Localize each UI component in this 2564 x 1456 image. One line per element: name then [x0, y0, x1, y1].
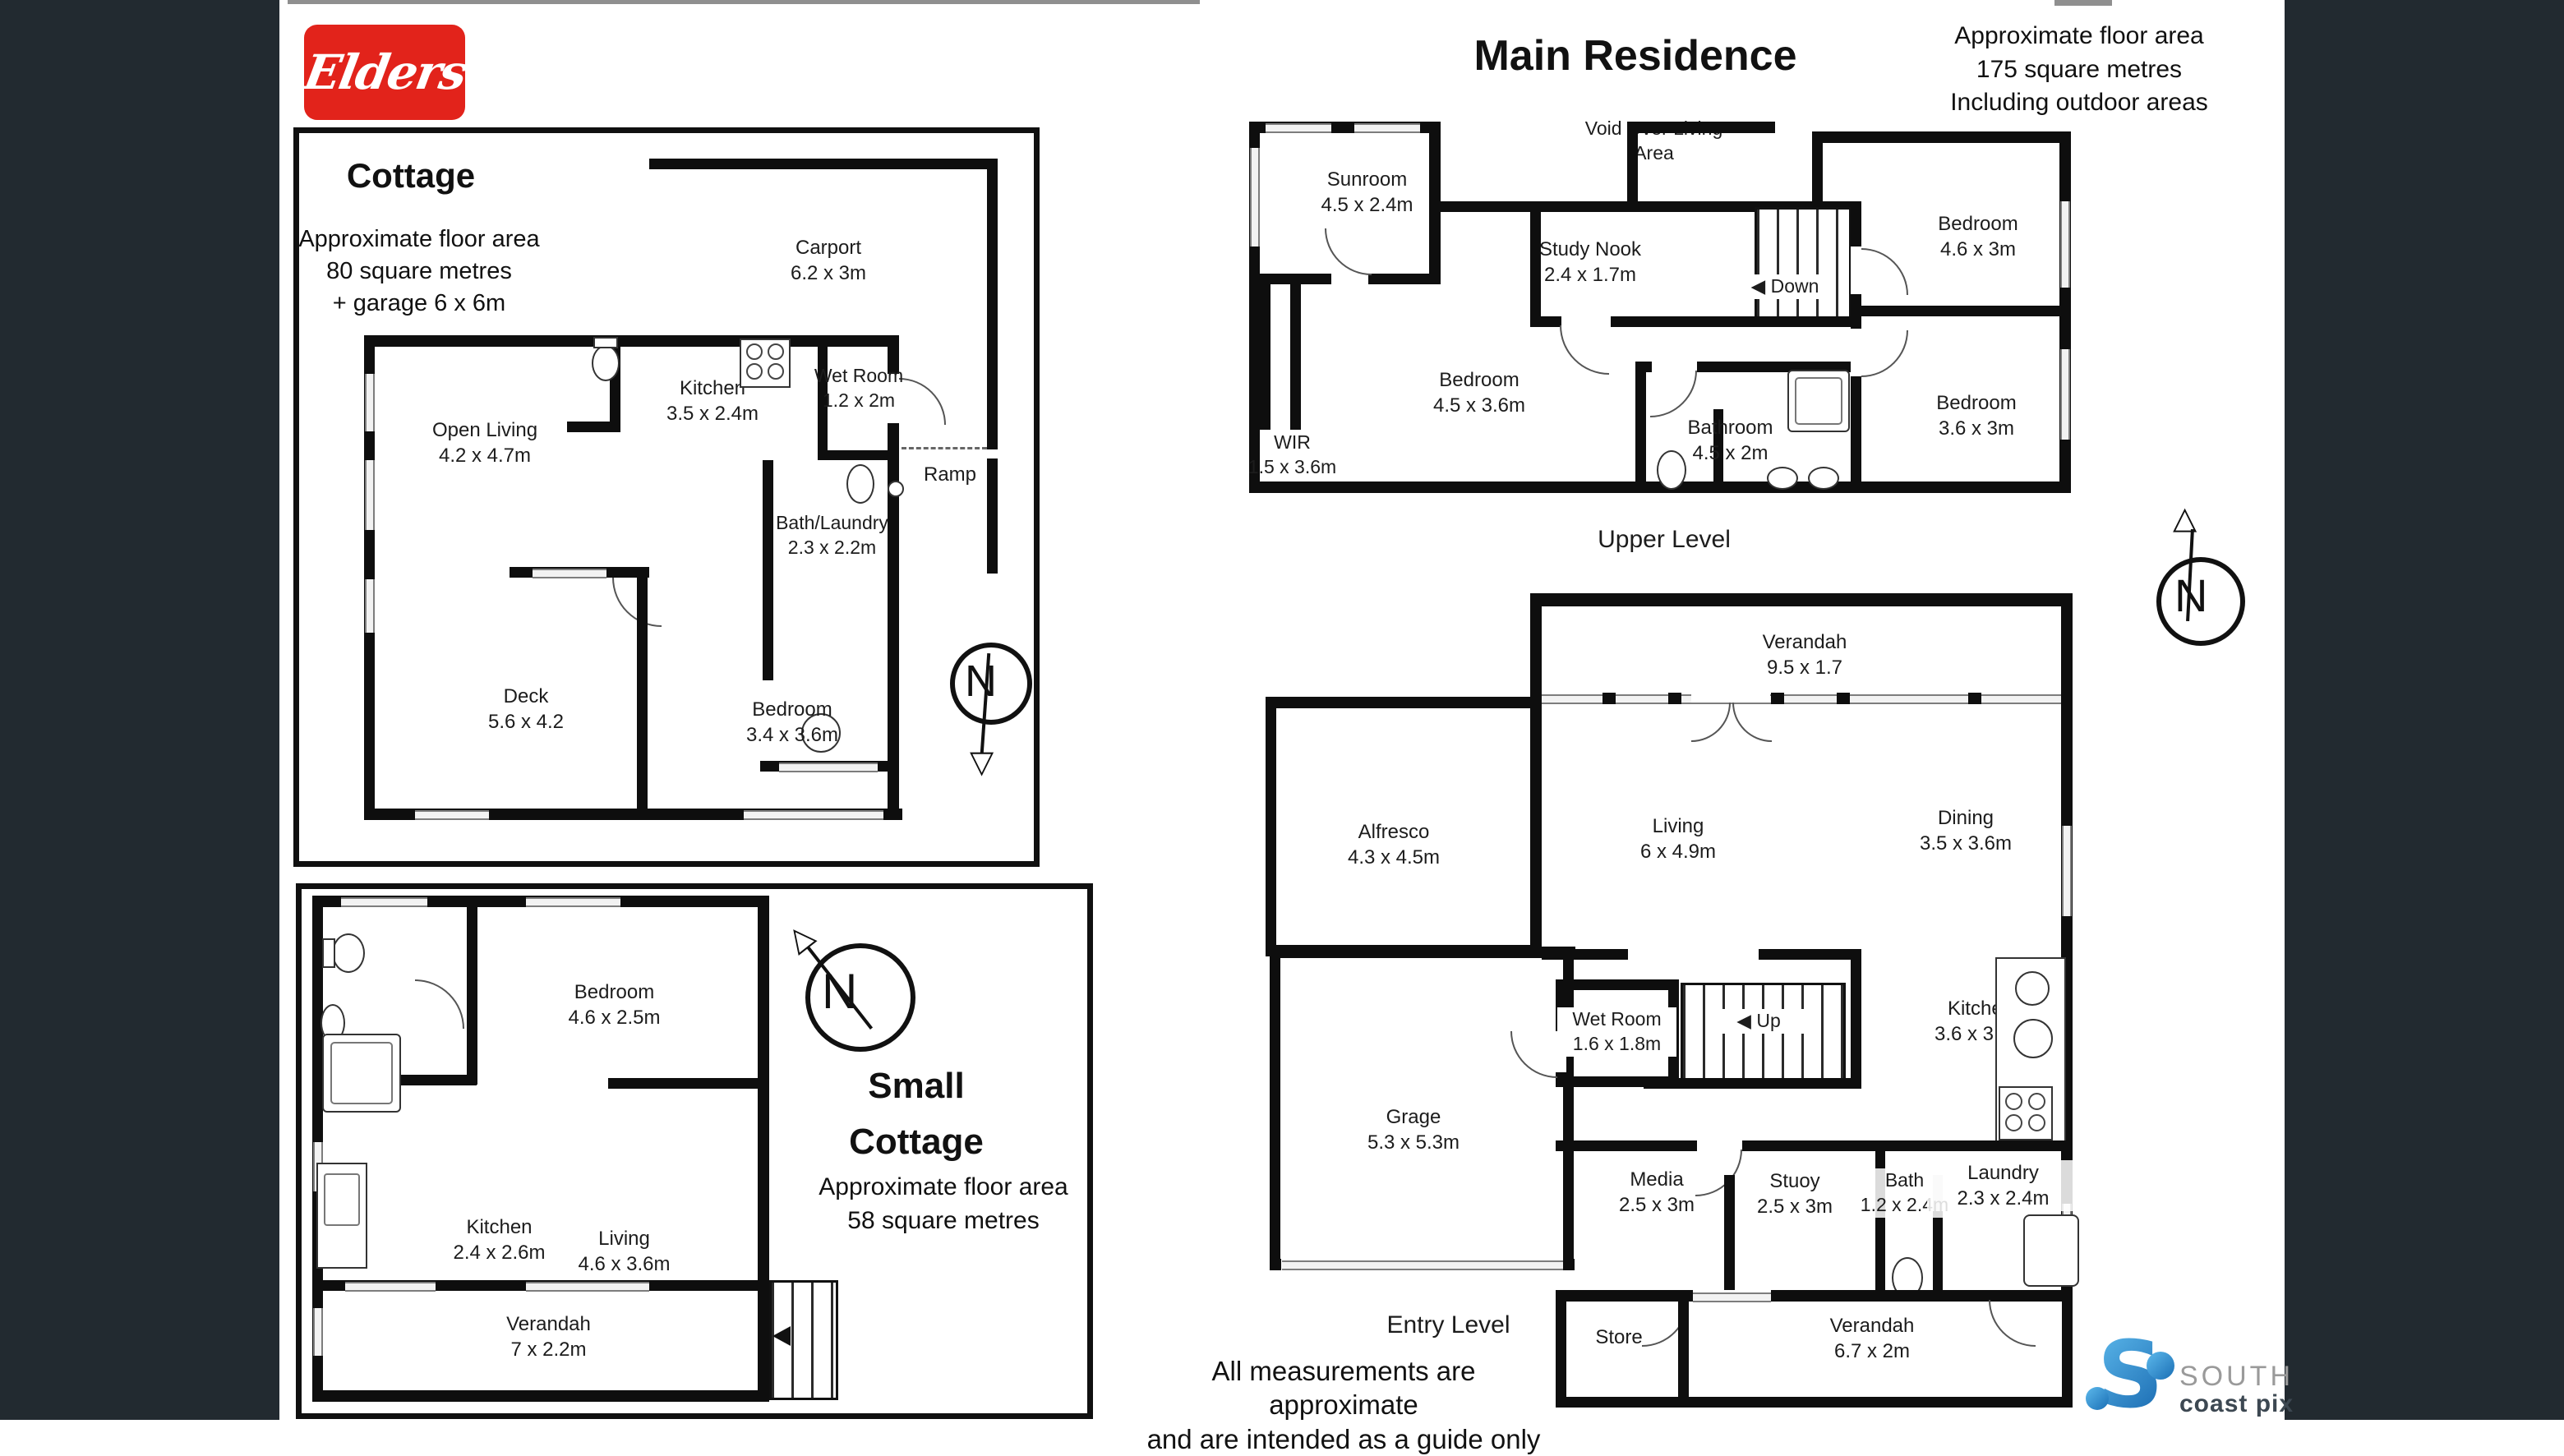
wall [987, 159, 998, 449]
compass-arrowhead: △ [2173, 500, 2197, 537]
wall [1627, 122, 1638, 212]
compass-north-letter: N [965, 656, 997, 707]
wall [1530, 593, 1542, 697]
door-arc [1650, 371, 1697, 417]
room-label-bedroom-cottage: Bedroom3.4 x 3.6m [722, 697, 863, 748]
window [779, 763, 878, 772]
sink-icon [2015, 971, 2050, 1006]
stove-burner-icon [2005, 1093, 2022, 1110]
wall [1759, 949, 1861, 960]
door-arc [1325, 228, 1372, 275]
room-label-bedroom-upper-left: Bedroom4.5 x 3.6m [1401, 367, 1557, 418]
wall [567, 422, 620, 432]
elders-logo: Elders [304, 25, 465, 120]
window [2060, 201, 2070, 288]
sink-icon [1808, 467, 1839, 490]
room-label-bedroom-upper-bottomright: Bedroom3.6 x 3m [1898, 390, 2054, 441]
sink-icon [1767, 467, 1798, 490]
room-label-wir: WIR1.5 x 3.6m [1237, 431, 1348, 480]
room-label-studynook: Study Nook2.4 x 1.7m [1516, 237, 1664, 288]
window [2062, 826, 2072, 916]
room-label-media: Media2.5 x 3m [1583, 1167, 1731, 1218]
window [744, 810, 883, 820]
room-label-bathlaundry: Bath/Laundry2.3 x 2.2m [764, 511, 900, 560]
wall [1530, 697, 1542, 956]
wall [1260, 274, 1270, 430]
door-opening [1851, 329, 1861, 376]
toilet-tank-icon [593, 337, 618, 348]
window-post [1668, 693, 1681, 704]
disclaimer-text: All measurements are approximate and are… [1138, 1354, 1549, 1456]
window [526, 897, 620, 907]
room-label-verandah-smallcottage: Verandah7 x 2.2m [477, 1311, 620, 1362]
wall [2061, 593, 2073, 697]
southcoastpix-word-south: SOUTH [2179, 1361, 2294, 1393]
window [1693, 1292, 1771, 1302]
floorplan-page: { "page": {"side_panel_color": "#222a30"… [0, 0, 2564, 1420]
window [345, 1282, 436, 1292]
main-area-line1: Approximate floor area [1915, 20, 2243, 53]
room-label-alfresco: Alfresco4.3 x 4.5m [1320, 819, 1468, 870]
wall [1851, 306, 2060, 316]
upper-level-label: Upper Level [1582, 526, 1746, 554]
window-post [1968, 693, 1981, 704]
wall [2062, 1290, 2073, 1408]
toilet-tank-icon [322, 938, 335, 968]
room-label-laundry: Laundry2.3 x 2.4m [1927, 1160, 2079, 1211]
wall [1542, 949, 1628, 960]
main-residence-area-text: Approximate floor area 175 square metres… [1915, 20, 2243, 120]
wall [1635, 362, 1646, 492]
wall [467, 896, 477, 1085]
door-arc [1510, 1031, 1557, 1078]
disclaimer-line2: and are intended as a guide only [1138, 1422, 1549, 1456]
room-label-bedroom-upper-topright: Bedroom4.6 x 3m [1900, 211, 2056, 262]
window [533, 569, 606, 578]
main-area-line3: Including outdoor areas [1915, 86, 2243, 120]
stairs-up-label: ◀ Up [1713, 1009, 1804, 1034]
room-label-verandah-top: Verandah9.5 x 1.7 [1731, 629, 1879, 680]
southcoastpix-dot-icon [2086, 1387, 2109, 1410]
wall [1270, 947, 1575, 958]
cottage-area-line2: 80 square metres [296, 256, 542, 288]
stairs-arrow-icon: ◀ [1751, 275, 1766, 297]
window-post [1602, 693, 1616, 704]
room-label-bedroom-smallcottage: Bedroom4.6 x 2.5m [542, 979, 686, 1030]
southcoastpix-word-coastpix: coast pix [2179, 1390, 2294, 1418]
wall [1266, 697, 1530, 708]
small-cottage-area-text: Approximate floor area 58 square metres [787, 1171, 1100, 1237]
kitchen-sink [324, 1173, 360, 1226]
room-label-garage: Grage5.3 x 5.3m [1340, 1104, 1487, 1155]
compass-north-letter: N [2174, 569, 2207, 622]
toilet-icon [332, 933, 365, 973]
room-label-kitchen-smallcottage: Kitchen2.4 x 2.6m [427, 1214, 571, 1265]
stove-burner-icon [746, 363, 763, 380]
window [365, 460, 375, 530]
light-icon [888, 481, 904, 497]
window-post [1771, 693, 1784, 704]
wall [1368, 274, 1441, 284]
wall [312, 1390, 769, 1402]
right-dark-panel [2285, 0, 2564, 1420]
room-label-carport: Carport6.2 x 3m [746, 235, 911, 286]
toilet-icon [592, 345, 620, 381]
compass-arrowhead: ▽ [970, 744, 994, 781]
disclaimer-line1: All measurements are approximate [1138, 1354, 1549, 1422]
wall [758, 896, 769, 1402]
window [1250, 148, 1260, 247]
stove-burner-icon [2028, 1093, 2045, 1110]
window [2060, 349, 2070, 440]
room-label-dining: Dining3.5 x 3.6m [1892, 805, 2040, 856]
stove-burner-icon [768, 343, 784, 360]
wall [1627, 122, 1775, 133]
door-arc [1732, 703, 1772, 742]
wall [1556, 979, 1679, 990]
window [365, 374, 375, 431]
window [1542, 694, 2061, 704]
window [365, 579, 375, 633]
toilet-icon [1657, 450, 1686, 490]
room-label-wetroom-entry: Wet Room1.6 x 1.8m [1557, 1007, 1676, 1057]
wall [608, 1078, 769, 1089]
stairs-down [1755, 207, 1852, 319]
window [1266, 123, 1331, 133]
scan-artifact [2054, 0, 2112, 6]
small-cottage-title-line2: Cottage [793, 1114, 1040, 1170]
stove-burner-icon [768, 363, 784, 380]
southcoastpix-dot-icon [2147, 1352, 2174, 1380]
wall [649, 159, 998, 169]
window-post [1563, 1259, 1575, 1270]
cottage-title: Cottage [320, 156, 501, 196]
room-label-living-entry: Living6 x 4.9m [1604, 813, 1752, 864]
cottage-area-text: Approximate floor area 80 square metres … [296, 223, 542, 320]
sink-icon [2013, 1019, 2053, 1058]
room-label-sunroom: Sunroom4.5 x 2.4m [1295, 167, 1439, 218]
cottage-area-line3: + garage 6 x 6m [296, 288, 542, 320]
small-cottage-area-line2: 58 square metres [787, 1205, 1100, 1238]
window [341, 897, 427, 907]
main-residence-title: Main Residence [1471, 31, 1800, 81]
room-label-store: Store [1566, 1325, 1672, 1350]
wall [818, 450, 898, 460]
compass-north-letter: N [822, 963, 857, 1020]
wall [1556, 1397, 1689, 1408]
wall [1812, 131, 1823, 210]
window [526, 1282, 649, 1292]
small-cottage-title-line1: Small [793, 1058, 1040, 1114]
wall [1678, 1397, 2073, 1408]
shower-tray [1795, 377, 1842, 425]
stairs-up [1681, 983, 1846, 1086]
wall [987, 458, 998, 574]
wall [763, 460, 773, 680]
stove-burner-icon [2028, 1114, 2045, 1131]
washing-machine-icon [2023, 1214, 2079, 1287]
stairs-down-label: ◀ Down [1736, 274, 1834, 299]
small-cottage-title: Small Cottage [793, 1058, 1040, 1170]
steps-arrow-icon [772, 1326, 791, 1346]
stove-burner-icon [746, 343, 763, 360]
stairs-arrow-icon: ◀ [1736, 1010, 1751, 1031]
wall [1530, 593, 2073, 606]
stove-icon [1999, 1086, 2053, 1140]
wall [1556, 1140, 2067, 1151]
room-label-openliving: Open Living4.2 x 4.7m [415, 417, 555, 468]
door-arc [1560, 325, 1609, 375]
entry-level-label: Entry Level [1360, 1311, 1537, 1339]
cottage-area-line1: Approximate floor area [296, 223, 542, 256]
window [415, 810, 489, 820]
window-post [1837, 693, 1850, 704]
stove-burner-icon [2005, 1114, 2022, 1131]
door-opening [1851, 247, 1861, 294]
left-dark-panel [0, 0, 279, 1420]
wall [1875, 1140, 1885, 1301]
door-arc [1989, 1300, 2036, 1347]
window [1354, 123, 1420, 133]
door-arc [1691, 703, 1731, 742]
door-arc [1861, 330, 1908, 377]
small-cottage-area-line1: Approximate floor area [787, 1171, 1100, 1205]
wall [1290, 274, 1301, 430]
room-label-wetroom-cottage: Wet Room1.2 x 2m [809, 364, 908, 413]
window [313, 1308, 323, 1356]
wall [1812, 131, 2071, 143]
room-label-living-smallcottage: Living4.6 x 3.6m [552, 1226, 696, 1277]
main-area-line2: 175 square metres [1915, 53, 2243, 87]
ramp-dashed-line [902, 447, 987, 449]
scan-artifact [288, 0, 1200, 4]
wall [1266, 697, 1276, 956]
room-label-deck: Deck5.6 x 4.2 [456, 684, 596, 735]
shower-tray [330, 1042, 393, 1104]
room-label-study: Stuoy2.5 x 3m [1721, 1168, 1869, 1219]
wall [1270, 947, 1280, 1269]
window [1282, 1260, 1565, 1270]
elders-logo-text: Elders [300, 44, 470, 100]
wall [1678, 1290, 1689, 1407]
wall [637, 567, 648, 809]
window-post [1270, 1259, 1281, 1270]
door-opening [1691, 694, 1770, 703]
wall [1644, 1078, 1851, 1089]
room-label-ramp: Ramp [912, 462, 988, 487]
toilet-icon [846, 464, 874, 504]
room-label-verandah-bottom: Verandah6.7 x 2m [1798, 1313, 1946, 1364]
wall [1851, 949, 1861, 1089]
